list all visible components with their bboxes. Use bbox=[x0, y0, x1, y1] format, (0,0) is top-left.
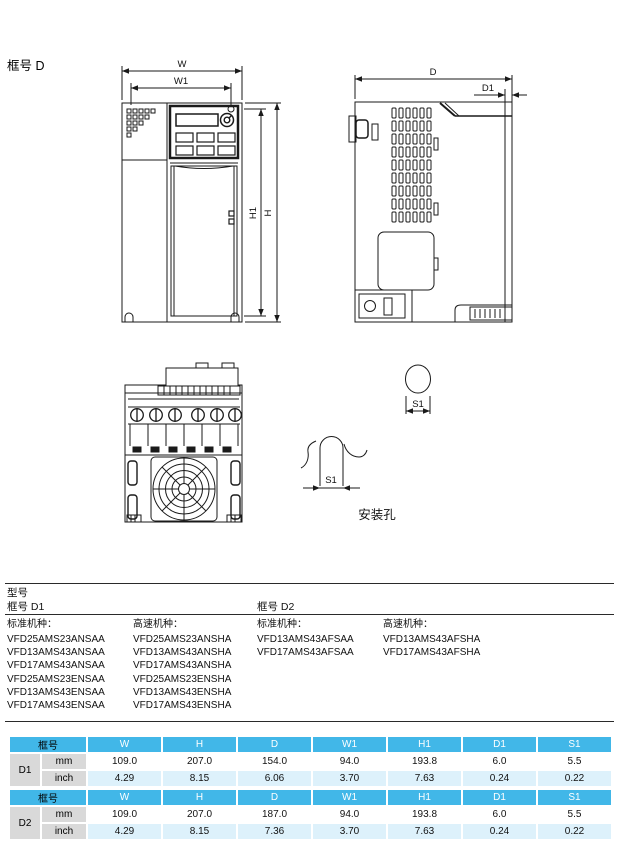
header-d: D bbox=[238, 737, 311, 752]
value-cell: 8.15 bbox=[163, 771, 236, 786]
dim-label-d: D bbox=[430, 67, 437, 78]
value-cell: 109.0 bbox=[88, 754, 161, 769]
d1-highspeed-models-column: 高速机种： VFD25AMS23ANSHA VFD13AMS43ANSHA VF… bbox=[133, 618, 231, 712]
value-cell: 94.0 bbox=[313, 754, 386, 769]
value-cell: 5.5 bbox=[538, 807, 611, 822]
value-cell: 4.29 bbox=[88, 824, 161, 839]
model-number: VFD17AMS43ENSAA bbox=[7, 699, 105, 712]
value-cell: 193.8 bbox=[388, 807, 461, 822]
header-d: D bbox=[238, 790, 311, 805]
header-s1: S1 bbox=[538, 737, 611, 752]
divider-bottom bbox=[5, 721, 614, 722]
frame-d1-label: 框号 D1 bbox=[7, 599, 44, 614]
header-w: W bbox=[88, 737, 161, 752]
dim-label-w1: W1 bbox=[174, 76, 188, 87]
value-cell: 207.0 bbox=[163, 807, 236, 822]
unit-cell: mm bbox=[42, 807, 86, 822]
value-cell: 207.0 bbox=[163, 754, 236, 769]
header-h1: H1 bbox=[388, 737, 461, 752]
divider-middle bbox=[5, 614, 614, 615]
value-cell: 0.22 bbox=[538, 771, 611, 786]
d2-standard-models-column: 标准机种： VFD13AMS43AFSAA VFD17AMS43AFSAA bbox=[257, 618, 354, 659]
value-cell: 0.24 bbox=[463, 771, 536, 786]
frame-d2-label: 框号 D2 bbox=[257, 599, 294, 614]
manual-page: { "page": { "title": "框号 D" }, "drawing"… bbox=[0, 0, 620, 858]
terminal-screws-drawing bbox=[131, 409, 242, 422]
model-number: VFD13AMS43ANSAA bbox=[7, 646, 105, 659]
mounting-hole-drawing: S1 S1 安装孔 bbox=[301, 365, 431, 522]
model-number: VFD17AMS43ANSHA bbox=[133, 659, 231, 672]
value-cell: 6.0 bbox=[463, 807, 536, 822]
d2-highspeed-models-column: 高速机种： VFD13AMS43AFSHA VFD17AMS43AFSHA bbox=[383, 618, 480, 659]
unit-cell: inch bbox=[42, 771, 86, 786]
dim-label-s1-circle: S1 bbox=[412, 399, 424, 410]
keypad-drawing bbox=[170, 106, 238, 158]
value-cell: 3.70 bbox=[313, 771, 386, 786]
model-section-title: 型号 bbox=[7, 585, 28, 600]
model-number: VFD25AMS23ANSAA bbox=[7, 633, 105, 646]
display-drawing bbox=[176, 114, 218, 126]
value-cell: 7.36 bbox=[238, 824, 311, 839]
header-w: W bbox=[88, 790, 161, 805]
model-number: VFD17AMS43AFSHA bbox=[383, 646, 480, 659]
side-view-drawing: D D1 bbox=[349, 67, 527, 322]
dim-label-w: W bbox=[178, 59, 187, 70]
front-view-drawing: W W1 H H1 bbox=[122, 59, 281, 322]
model-number: VFD25AMS23ANSHA bbox=[133, 633, 231, 646]
header-frame: 框号 bbox=[10, 737, 86, 752]
knob-drawing bbox=[221, 114, 234, 127]
divider-top bbox=[5, 583, 614, 584]
model-number: VFD13AMS43ANSHA bbox=[133, 646, 231, 659]
value-cell: 6.0 bbox=[463, 754, 536, 769]
dimension-table-d1: 框号 W H D W1 H1 D1 S1 D1 mm 109.0 207.0 1… bbox=[8, 735, 613, 788]
table-header-row: 框号 W H D W1 H1 D1 S1 bbox=[10, 790, 611, 805]
table-row: D1 mm 109.0 207.0 154.0 94.0 193.8 6.0 5… bbox=[10, 754, 611, 769]
header-h: H bbox=[163, 790, 236, 805]
bottom-view-drawing bbox=[125, 363, 242, 522]
dim-label-d1: D1 bbox=[482, 83, 494, 94]
dimension-tables: 框号 W H D W1 H1 D1 S1 D1 mm 109.0 207.0 1… bbox=[8, 735, 613, 841]
header-h1: H1 bbox=[388, 790, 461, 805]
header-s1: S1 bbox=[538, 790, 611, 805]
d1-highspeed-title: 高速机种： bbox=[133, 618, 231, 633]
value-cell: 0.24 bbox=[463, 824, 536, 839]
value-cell: 8.15 bbox=[163, 824, 236, 839]
model-number: VFD13AMS43ENSAA bbox=[7, 686, 105, 699]
dimension-drawings: W W1 H H1 bbox=[0, 0, 620, 560]
dim-label-h: H bbox=[263, 209, 274, 216]
dim-label-s1-slot: S1 bbox=[325, 475, 337, 486]
unit-cell: inch bbox=[42, 824, 86, 839]
value-cell: 4.29 bbox=[88, 771, 161, 786]
value-cell: 0.22 bbox=[538, 824, 611, 839]
d2-standard-title: 标准机种： bbox=[257, 618, 354, 633]
header-w1: W1 bbox=[313, 790, 386, 805]
value-cell: 3.70 bbox=[313, 824, 386, 839]
value-cell: 109.0 bbox=[88, 807, 161, 822]
header-d1: D1 bbox=[463, 790, 536, 805]
table-header-row: 框号 W H D W1 H1 D1 S1 bbox=[10, 737, 611, 752]
frame-cell: D1 bbox=[10, 754, 40, 786]
table-row: inch 4.29 8.15 6.06 3.70 7.63 0.24 0.22 bbox=[10, 771, 611, 786]
model-number: VFD25AMS23ENSHA bbox=[133, 673, 231, 686]
value-cell: 154.0 bbox=[238, 754, 311, 769]
d2-highspeed-title: 高速机种： bbox=[383, 618, 480, 633]
value-cell: 7.63 bbox=[388, 771, 461, 786]
table-row: inch 4.29 8.15 7.36 3.70 7.63 0.24 0.22 bbox=[10, 824, 611, 839]
model-number: VFD13AMS43AFSHA bbox=[383, 633, 480, 646]
mounting-hole-caption: 安装孔 bbox=[358, 507, 396, 522]
value-cell: 94.0 bbox=[313, 807, 386, 822]
value-cell: 5.5 bbox=[538, 754, 611, 769]
model-number: VFD17AMS43AFSAA bbox=[257, 646, 354, 659]
model-number: VFD17AMS43ANSAA bbox=[7, 659, 105, 672]
table-row: D2 mm 109.0 207.0 187.0 94.0 193.8 6.0 5… bbox=[10, 807, 611, 822]
header-frame: 框号 bbox=[10, 790, 86, 805]
model-number: VFD13AMS43AFSAA bbox=[257, 633, 354, 646]
value-cell: 7.63 bbox=[388, 824, 461, 839]
d1-standard-models-column: 标准机种： VFD25AMS23ANSAA VFD13AMS43ANSAA VF… bbox=[7, 618, 105, 712]
value-cell: 6.06 bbox=[238, 771, 311, 786]
model-number: VFD25AMS23ENSAA bbox=[7, 673, 105, 686]
d1-standard-title: 标准机种： bbox=[7, 618, 105, 633]
header-h: H bbox=[163, 737, 236, 752]
header-w1: W1 bbox=[313, 737, 386, 752]
dim-label-h1: H1 bbox=[248, 207, 259, 219]
model-number: VFD13AMS43ENSHA bbox=[133, 686, 231, 699]
dimension-table-d2: 框号 W H D W1 H1 D1 S1 D2 mm 109.0 207.0 1… bbox=[8, 788, 613, 841]
unit-cell: mm bbox=[42, 754, 86, 769]
fan-drawing bbox=[153, 458, 215, 520]
value-cell: 193.8 bbox=[388, 754, 461, 769]
header-d1: D1 bbox=[463, 737, 536, 752]
frame-cell: D2 bbox=[10, 807, 40, 839]
model-number: VFD17AMS43ENSHA bbox=[133, 699, 231, 712]
value-cell: 187.0 bbox=[238, 807, 311, 822]
